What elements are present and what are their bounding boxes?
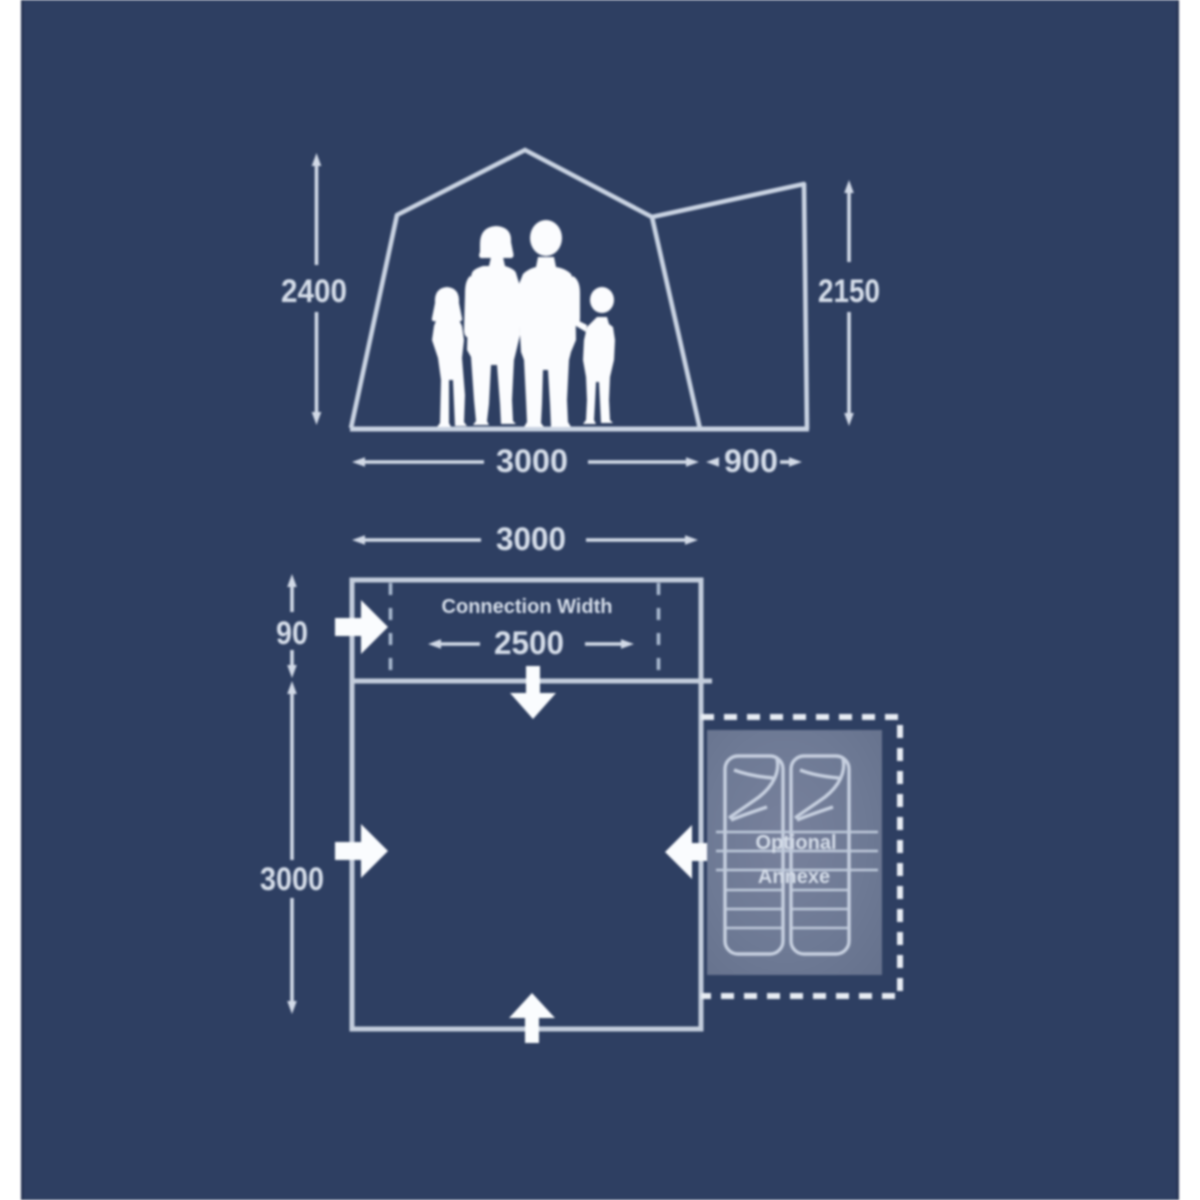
svg-text:2500: 2500 <box>494 625 564 661</box>
svg-text:3000: 3000 <box>496 443 568 479</box>
svg-text:Connection Width: Connection Width <box>442 596 613 618</box>
svg-text:2400: 2400 <box>281 273 347 309</box>
svg-text:Annexe: Annexe <box>758 866 830 888</box>
svg-text:Optional: Optional <box>755 832 836 854</box>
svg-text:900: 900 <box>724 443 778 479</box>
svg-text:90: 90 <box>276 615 308 651</box>
svg-text:2150: 2150 <box>818 273 880 309</box>
svg-text:3000: 3000 <box>260 861 324 897</box>
svg-text:3000: 3000 <box>496 521 566 557</box>
